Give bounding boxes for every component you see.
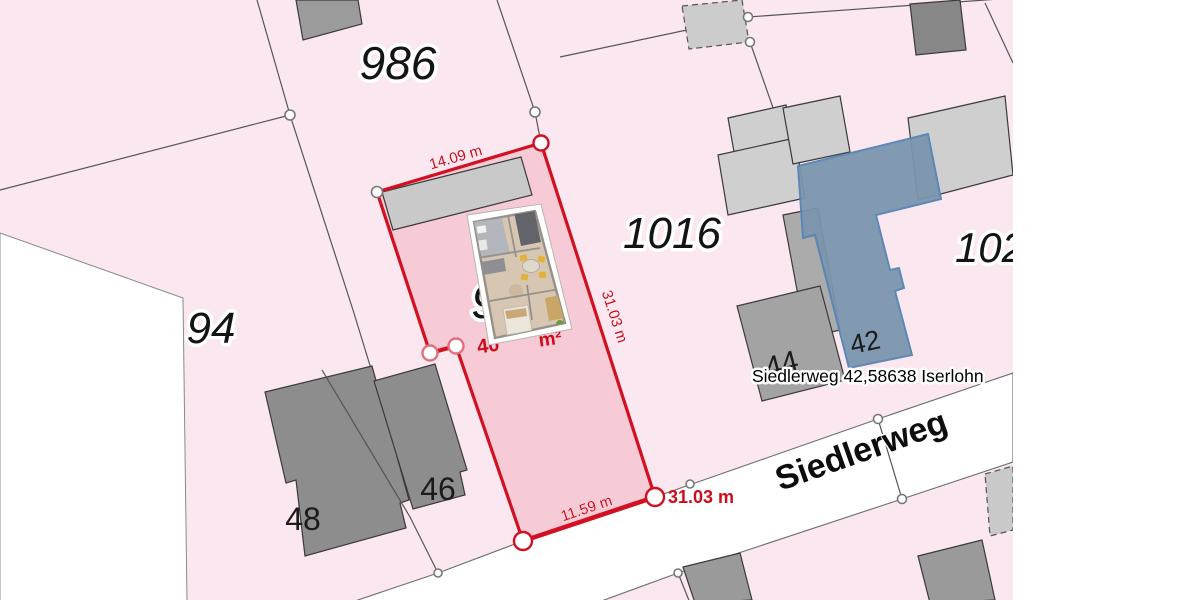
survey-point[interactable] bbox=[674, 569, 682, 577]
survey-point[interactable] bbox=[530, 107, 540, 117]
parcel-vertex[interactable] bbox=[646, 488, 664, 506]
floorplan-fixture bbox=[478, 239, 487, 250]
parcel-vertex[interactable] bbox=[534, 136, 549, 151]
house-number-42: 42 bbox=[847, 324, 883, 360]
survey-point[interactable] bbox=[898, 495, 907, 504]
measurement-right-edge-bold: 31.03 m bbox=[668, 487, 734, 507]
parcel-label-102: 102 bbox=[955, 224, 1025, 271]
house-number-46: 46 bbox=[420, 471, 456, 507]
parcel-vertex[interactable] bbox=[514, 532, 532, 550]
house-number-48: 48 bbox=[285, 501, 321, 537]
survey-point[interactable] bbox=[746, 38, 755, 47]
parcel-vertex[interactable] bbox=[423, 346, 438, 361]
address-label: Siedlerweg 42,58638 Iserlohn bbox=[752, 366, 984, 386]
parcel-vertex[interactable] bbox=[449, 339, 464, 354]
floorplan-fixture bbox=[477, 225, 487, 233]
survey-point[interactable] bbox=[372, 187, 383, 198]
survey-point[interactable] bbox=[285, 110, 295, 120]
survey-point[interactable] bbox=[874, 415, 883, 424]
survey-point[interactable] bbox=[434, 569, 442, 577]
parcel-label-986: 986 bbox=[360, 37, 437, 89]
parcel-label-1016: 1016 bbox=[623, 209, 721, 258]
building-dashed bbox=[985, 466, 1013, 536]
building-dashed bbox=[682, 0, 749, 49]
survey-point[interactable] bbox=[744, 13, 753, 22]
building bbox=[910, 0, 966, 55]
floorplan-chair bbox=[539, 271, 547, 278]
cadastral-map[interactable]: 986 1016 94 93 102 48 46 44 42 40 m² bbox=[0, 0, 1200, 600]
building bbox=[783, 96, 850, 164]
floorplan-table bbox=[523, 260, 540, 273]
cadastral-map-stage: 986 1016 94 93 102 48 46 44 42 40 m² bbox=[0, 0, 1200, 600]
floorplan-chair bbox=[521, 274, 529, 281]
floorplan-chair bbox=[520, 254, 528, 261]
parcel-label-94: 94 bbox=[187, 304, 236, 353]
